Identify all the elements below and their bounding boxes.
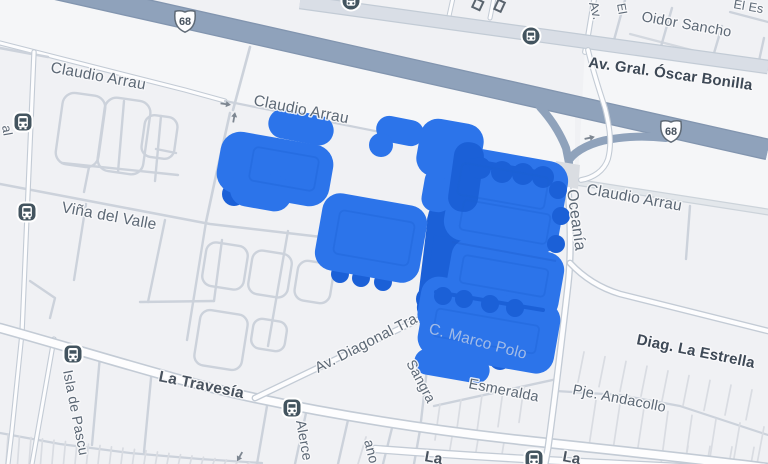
svg-text:La: La <box>561 448 582 464</box>
svg-text:La: La <box>423 448 444 464</box>
